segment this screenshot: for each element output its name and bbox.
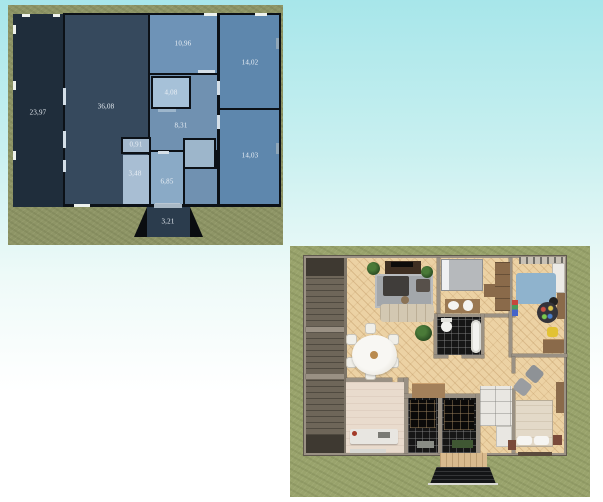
room-area-label: 3,21 xyxy=(161,219,174,226)
porch-side-left xyxy=(134,207,147,237)
toilet xyxy=(441,321,452,332)
terrace-3d xyxy=(306,258,346,453)
floor-plan-3d xyxy=(290,246,590,497)
room-area-label: 14,02 xyxy=(242,60,259,67)
room-area-label: 6,85 xyxy=(160,179,173,186)
yellow-chair xyxy=(547,327,558,337)
closet-mat xyxy=(417,441,434,448)
wall xyxy=(512,357,515,373)
master-desk xyxy=(556,382,564,413)
nightstand xyxy=(484,284,495,297)
coffee-table xyxy=(401,296,409,304)
white-wardrobe xyxy=(480,386,512,426)
door-gap xyxy=(158,151,169,154)
plant xyxy=(367,262,380,275)
window xyxy=(276,143,279,154)
door-gap xyxy=(158,109,176,112)
window xyxy=(13,25,16,34)
terrace-divider xyxy=(306,374,346,379)
dining-chair xyxy=(347,335,356,344)
porch-side-right xyxy=(190,207,203,237)
wardrobe xyxy=(495,262,510,311)
wall xyxy=(437,258,440,316)
sink xyxy=(448,301,459,310)
room-area-label: 36,08 xyxy=(98,104,115,111)
porch-step-edge xyxy=(428,483,498,485)
bench-tray xyxy=(378,432,390,438)
door-gap xyxy=(63,88,66,105)
laundry-shelving xyxy=(444,400,474,430)
porch-step xyxy=(154,204,182,208)
bathtub xyxy=(471,320,481,353)
armchair-dark xyxy=(416,279,430,292)
window xyxy=(13,81,16,90)
door-gap xyxy=(63,131,66,148)
room-area-label: 10,96 xyxy=(175,41,192,48)
nightstand xyxy=(553,435,562,445)
window xyxy=(204,13,217,16)
wall xyxy=(434,355,448,358)
room-area-label: 23,97 xyxy=(30,110,47,117)
sectional-sofa xyxy=(380,304,434,322)
room-area-label: 4,08 xyxy=(164,90,177,97)
porch-steps-3d xyxy=(430,467,496,484)
room-area-label: 0,91 xyxy=(129,142,142,149)
window xyxy=(22,14,30,17)
door-gap xyxy=(217,115,220,129)
wall xyxy=(462,355,484,358)
terrace-door-top xyxy=(306,258,346,276)
toy-bins xyxy=(512,300,518,316)
patio-door xyxy=(350,449,386,453)
plant xyxy=(415,325,432,341)
toilet-tank xyxy=(441,318,452,322)
bed-master-pillow xyxy=(534,436,549,445)
sideboard xyxy=(412,383,445,398)
door-gap xyxy=(217,81,220,95)
door-gap xyxy=(198,70,215,73)
room-hall-lower-right-2d xyxy=(185,169,217,204)
room-area-label: 3,48 xyxy=(128,171,141,178)
round-rug xyxy=(537,302,558,323)
laundry-mat xyxy=(452,440,473,448)
room-area-label: 14,03 xyxy=(242,153,259,160)
window xyxy=(255,13,267,16)
porch-deck-3d xyxy=(440,453,487,467)
terrace-divider xyxy=(306,327,346,332)
toilet xyxy=(463,300,473,311)
wall xyxy=(481,314,484,358)
sofa-dark xyxy=(383,276,409,296)
scene: 23,97 36,08 10,96 14,02 4,08 8,31 14,03 … xyxy=(0,0,603,502)
window xyxy=(74,204,90,207)
room-area-label: 8,31 xyxy=(174,123,187,130)
bed-guest-pillows xyxy=(442,260,449,290)
closet-shelving xyxy=(410,400,436,428)
nightstand xyxy=(508,440,516,450)
room-bathroom-2d xyxy=(123,155,149,204)
dining-chair xyxy=(366,324,375,333)
window xyxy=(276,38,279,49)
room-storage-2d xyxy=(185,140,214,167)
tv xyxy=(391,262,413,267)
kids-cabinet xyxy=(543,339,564,353)
floor-plan-2d: 23,97 36,08 10,96 14,02 4,08 8,31 14,03 … xyxy=(8,5,283,245)
plant xyxy=(421,266,433,278)
table-centerpiece xyxy=(370,351,378,359)
door-gap xyxy=(63,160,66,172)
flower-pot xyxy=(352,431,357,436)
bench xyxy=(350,429,398,444)
terrace-door-bottom xyxy=(306,435,346,453)
bed-master-pillow xyxy=(517,436,532,445)
master-window xyxy=(518,452,552,456)
window xyxy=(13,151,16,160)
kids-desk xyxy=(557,293,565,319)
wall xyxy=(512,354,567,357)
window xyxy=(53,14,60,17)
